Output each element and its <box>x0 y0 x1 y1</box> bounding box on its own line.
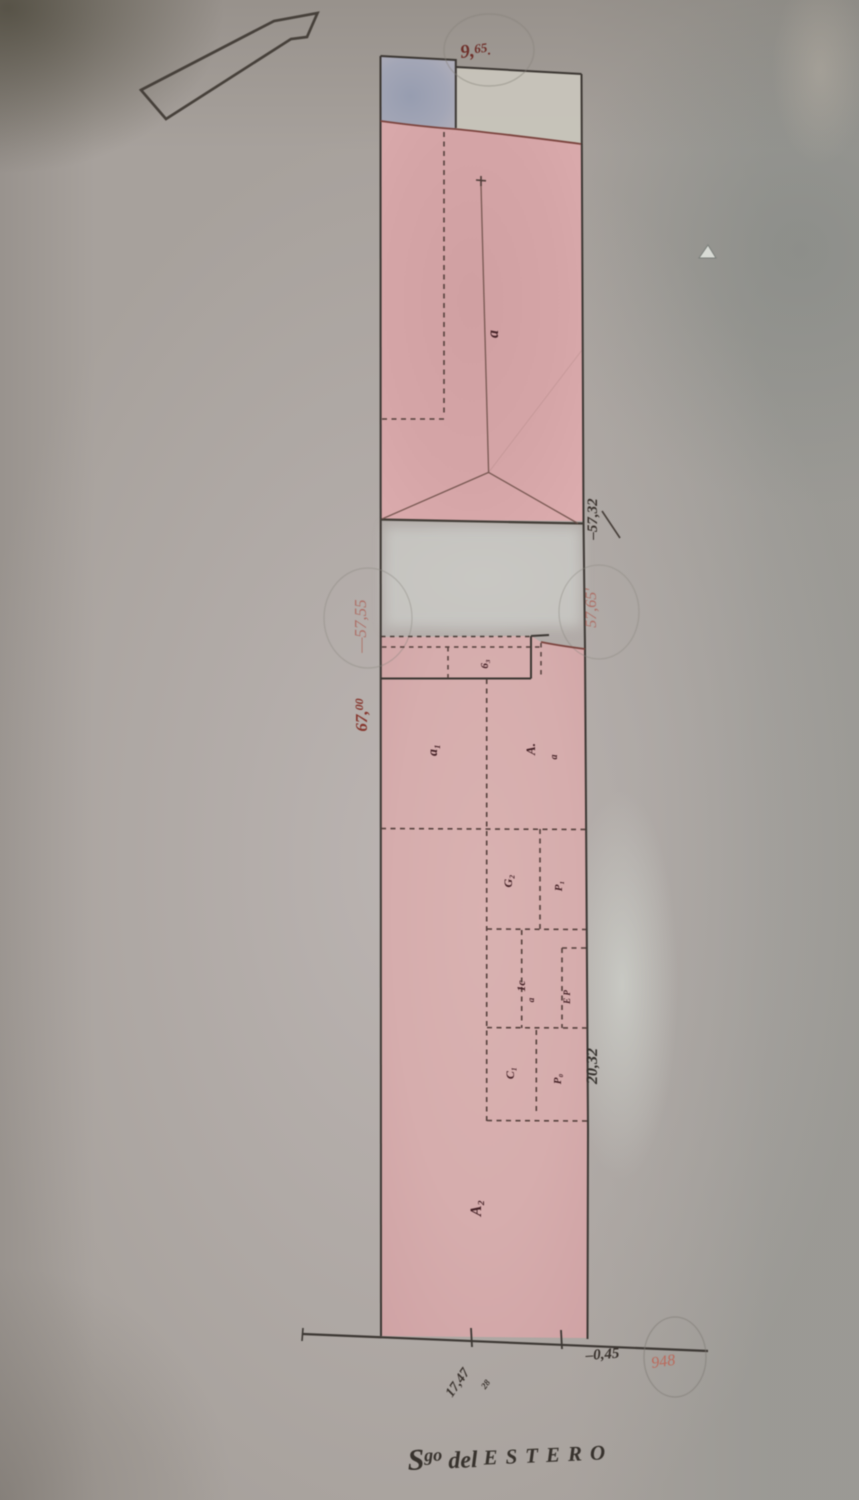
svg-text:a: a <box>549 755 560 760</box>
svg-text:–0,45: –0,45 <box>584 1346 620 1364</box>
svg-text:—57,55: —57,55 <box>351 599 370 653</box>
svg-text:948: 948 <box>650 1352 676 1372</box>
svg-text:20,32: 20,32 <box>584 1048 601 1085</box>
svg-text:a: a <box>526 997 536 1002</box>
svg-text:P₁: P₁ <box>553 881 565 892</box>
svg-text:A.: A. <box>523 743 538 756</box>
svg-text:A₂: A₂ <box>468 1200 485 1217</box>
svg-text:6₃: 6₃ <box>479 659 491 669</box>
svg-text:E P: E P <box>562 990 572 1005</box>
svg-text:1c: 1c <box>514 980 528 992</box>
svg-text:C₁: C₁ <box>503 1067 517 1079</box>
svg-text:a₁: a₁ <box>426 744 441 756</box>
svg-text:Sgo del ESTERO: Sgo del ESTERO <box>407 1435 614 1477</box>
svg-text:28: 28 <box>478 1377 492 1391</box>
svg-text:57,65': 57,65' <box>583 588 600 628</box>
svg-text:G₂: G₂ <box>501 875 515 888</box>
svg-text:9,65.: 9,65. <box>459 38 492 63</box>
svg-text:67,00: 67,00 <box>352 698 371 731</box>
svg-text:a: a <box>485 330 502 338</box>
svg-text:–57,32: –57,32 <box>585 498 601 541</box>
svg-text:17,47: 17,47 <box>443 1365 474 1400</box>
svg-text:P₀: P₀ <box>552 1074 564 1085</box>
